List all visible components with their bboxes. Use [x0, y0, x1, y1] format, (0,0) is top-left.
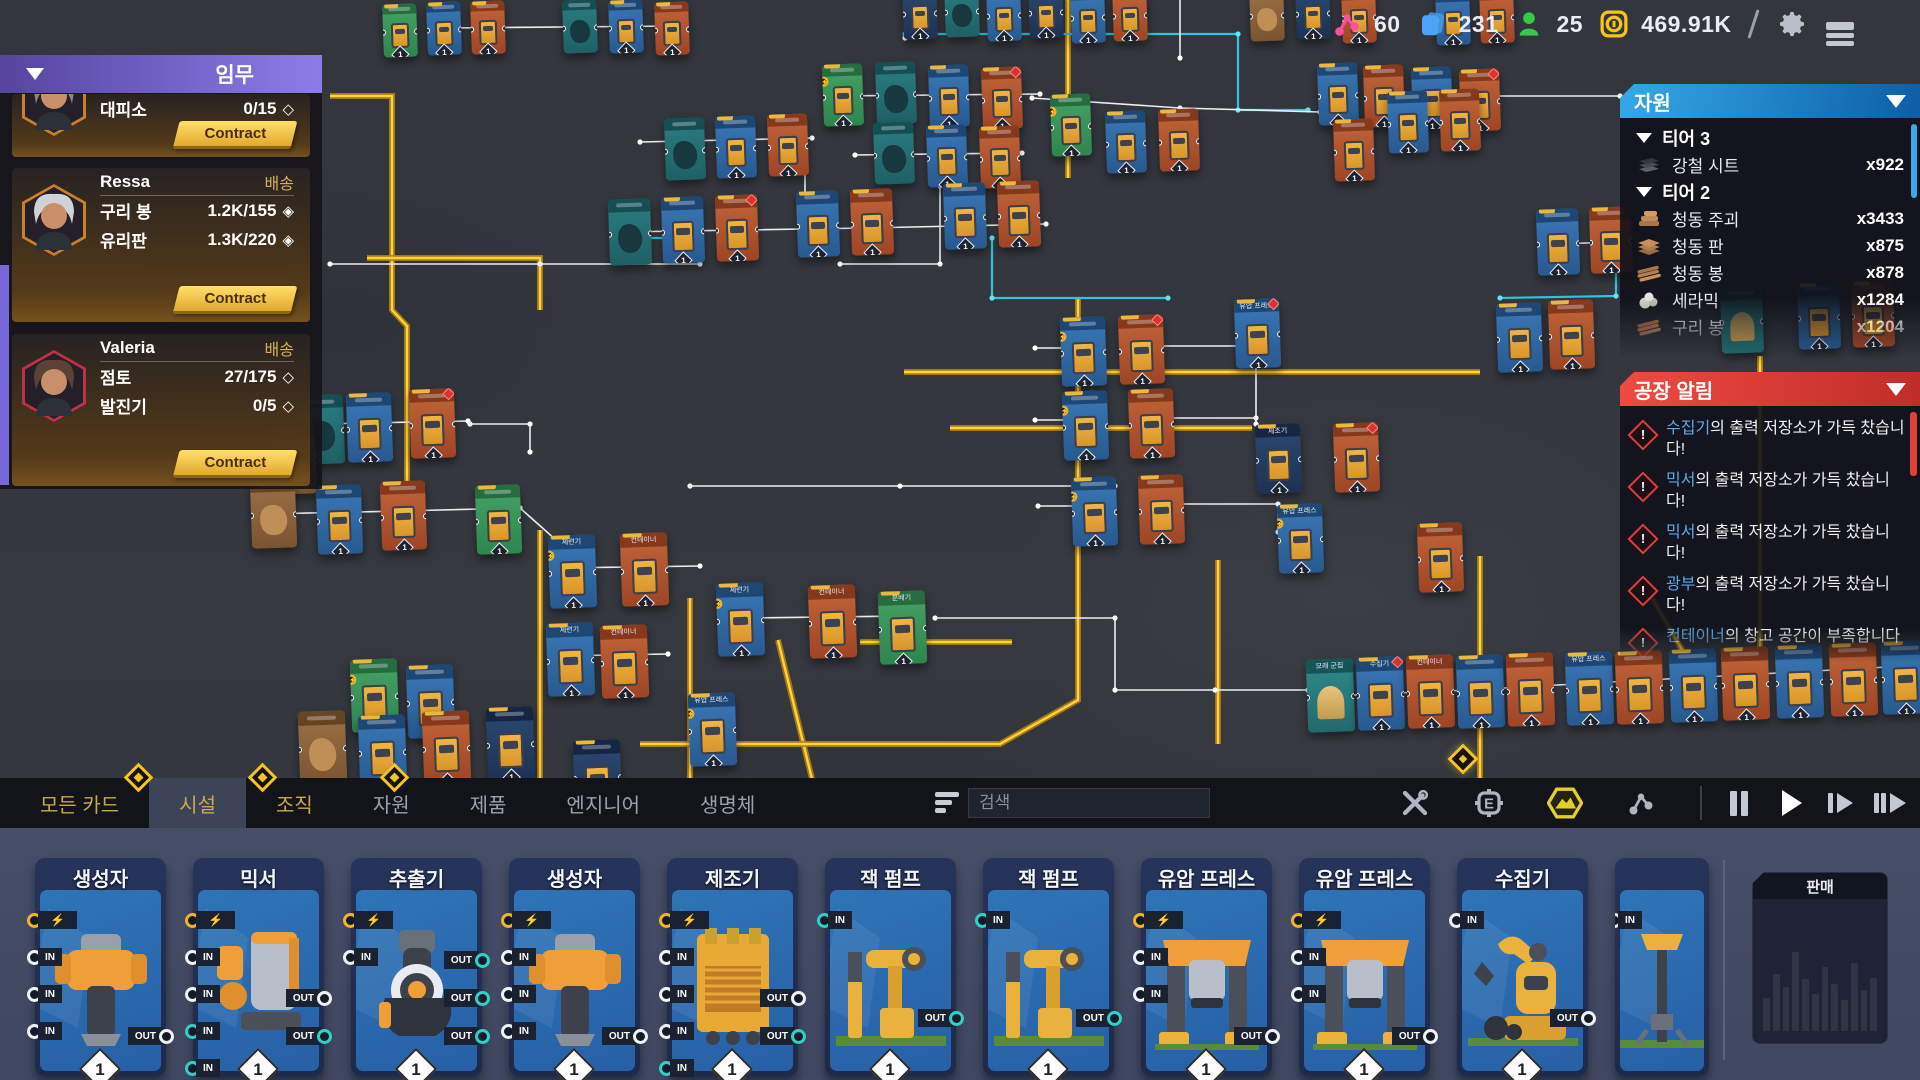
contract-button[interactable]: Contract: [173, 121, 298, 149]
machine-art: [1115, 133, 1137, 163]
settings-button[interactable]: [1775, 7, 1809, 41]
map-card[interactable]: 1: [1070, 0, 1106, 44]
alert-item[interactable]: !수집기의 출력 저장소가 가득 찼습니다!: [1620, 412, 1920, 464]
machine-art: [1893, 667, 1919, 702]
pause-button[interactable]: [1730, 790, 1748, 816]
map-card[interactable]: 1: [986, 0, 1022, 42]
map-card[interactable]: 1: [470, 0, 506, 54]
map-card-art: [664, 129, 706, 181]
copper-rod-icon: [1636, 317, 1662, 337]
resource-count: x3433: [1857, 209, 1904, 229]
map-card[interactable]: 1: [426, 1, 462, 55]
map-card[interactable]: [1249, 0, 1285, 42]
card-tab: [719, 583, 738, 588]
machine-art: [498, 733, 524, 768]
sell-panel[interactable]: 판매: [1752, 872, 1888, 1044]
map-card[interactable]: 제련기1: [546, 622, 596, 697]
power-port: ⚡: [501, 910, 551, 930]
map-card[interactable]: 컨테이너1: [1406, 654, 1456, 729]
mission-accent-strip: [0, 265, 9, 485]
collapse-triangle-icon: [1636, 133, 1652, 143]
map-card[interactable]: [298, 710, 348, 785]
machine-art: [1418, 681, 1444, 716]
item-progress: 0/5: [253, 396, 277, 415]
card-tab: [1459, 655, 1478, 660]
map-card[interactable]: 1: [1387, 90, 1429, 153]
map-card[interactable]: 1: [981, 66, 1023, 129]
contract-rows: 대피소0/15◇: [100, 94, 294, 123]
machine-art: [1681, 675, 1707, 710]
card-tab: [1319, 63, 1335, 68]
mission-panel-header[interactable]: 임무: [0, 55, 322, 93]
power-port: ⚡: [343, 910, 393, 930]
map-card[interactable]: 1: [1118, 314, 1165, 385]
card-tab: [1073, 477, 1091, 482]
map-card[interactable]: 1: [1295, 0, 1331, 40]
map-card-art: [298, 724, 347, 785]
machine-art: [1627, 677, 1653, 712]
card-hex-icon[interactable]: [1546, 785, 1584, 821]
card-tab: [981, 126, 997, 131]
fastest-speed-button[interactable]: [1874, 790, 1906, 816]
input-port: IN: [1615, 910, 1642, 930]
contract-rows: Ressa배송구리 봉1.2K/155◈유리판1.3K/220◈: [100, 168, 294, 254]
tab-5[interactable]: 엔지니어: [536, 778, 670, 828]
machine-art: [995, 7, 1014, 32]
resource-name: 청동 봉: [1672, 260, 1724, 285]
map-card-art: [562, 9, 597, 53]
stats-bar: 60 231 25 469.91K: [1330, 6, 1920, 42]
currency-icon: [1597, 7, 1631, 41]
power-port-icon: ⚡: [1062, 405, 1069, 415]
item-name: 유리판: [100, 227, 147, 252]
hand-card-유압 프레스[interactable]: 유압 프레스⚡ININOUT1: [1299, 858, 1430, 1076]
client-name: Ressa: [100, 172, 150, 192]
resource-art: [884, 85, 908, 113]
input-port: IN: [1291, 947, 1326, 967]
contract-type-label: 배송: [265, 336, 294, 360]
map-card[interactable]: 컨테이너1: [620, 532, 670, 607]
map-card[interactable]: 1: [1496, 302, 1543, 373]
hand-card-추출기[interactable]: 추출기⚡INOUTOUTOUT1: [351, 858, 482, 1076]
map-card-art: [1249, 0, 1284, 42]
network-view-icon[interactable]: [1622, 785, 1660, 821]
map-card[interactable]: ⚡1: [1071, 476, 1118, 547]
machine-art: [1079, 9, 1098, 34]
card-tab: [1335, 423, 1353, 428]
input-port: IN: [817, 910, 852, 930]
alert-item[interactable]: !광부의 출력 저장소가 가득 찼습니다!: [1620, 568, 1920, 620]
resource-name: 청동 주괴: [1672, 206, 1739, 231]
input-port: IN: [501, 984, 536, 1004]
map-card[interactable]: [944, 0, 980, 38]
input-port: IN: [501, 947, 536, 967]
machine-art: [672, 220, 695, 252]
power-port-icon: ⚡: [1060, 331, 1067, 341]
card-tab: [1359, 657, 1378, 662]
hand-card-partial[interactable]: IN: [1615, 858, 1709, 1076]
contract-client-row: Ressa배송: [100, 168, 294, 196]
progress-diamond-icon: ◇: [282, 369, 294, 386]
output-port: OUT: [1234, 1026, 1280, 1046]
map-card[interactable]: 1: [767, 113, 809, 176]
resource-name: 구리 봉: [1672, 314, 1724, 339]
map-card[interactable]: [608, 198, 652, 265]
map-card[interactable]: 1: [997, 180, 1041, 247]
item-name: 점토: [100, 364, 131, 389]
tab-6[interactable]: 생명체: [670, 778, 785, 828]
output-port: OUT: [286, 1026, 332, 1046]
alerts-scrollbar[interactable]: [1910, 412, 1917, 476]
alert-text: 컨테이너의 창고 공간이 부족합니다: [1666, 626, 1900, 647]
map-card[interactable]: 1: [1417, 522, 1464, 593]
output-port: OUT: [1076, 1008, 1122, 1028]
map-card[interactable]: 1: [928, 64, 970, 127]
map-card[interactable]: 모래 군집: [1306, 658, 1356, 733]
sell-chart-bars: [1763, 921, 1877, 1031]
card-tab: [1389, 91, 1405, 96]
map-card[interactable]: 1: [1333, 422, 1380, 493]
map-card[interactable]: 컨테이너1: [808, 584, 858, 659]
map-card[interactable]: 제련기⚡1: [548, 534, 598, 609]
map-card[interactable]: 1: [1536, 208, 1580, 275]
map-card[interactable]: ⚡1: [1050, 93, 1092, 156]
machine-art: [1600, 230, 1623, 262]
map-card[interactable]: 1: [661, 196, 705, 263]
map-card[interactable]: 제련기⚡1: [716, 582, 766, 657]
contract-card: Ressa배송구리 봉1.2K/155◈유리판1.3K/220◈Contract: [12, 168, 310, 322]
map-card-art: [944, 0, 979, 38]
card-tab: [477, 485, 495, 490]
machine-art: [612, 651, 638, 686]
map-card[interactable]: [875, 61, 917, 124]
card-tab: [1568, 652, 1587, 657]
tab-1[interactable]: 시설: [149, 778, 246, 828]
machine-art: [777, 136, 799, 166]
output-port: OUT: [760, 988, 806, 1008]
tier-header-row[interactable]: 티어 2: [1620, 178, 1920, 205]
hand-card-생성자[interactable]: 생성자⚡INININOUT1: [35, 858, 166, 1076]
resource-row: 구리 봉x1204: [1620, 313, 1920, 340]
map-card[interactable]: 유압 프레스⚡1: [1277, 503, 1324, 574]
resource-art: [673, 141, 697, 169]
machine-art: [700, 719, 726, 754]
contract-card: Valeria배송점토27/175◇발진기0/5◇Contract: [12, 334, 310, 486]
tab-4[interactable]: 제품: [440, 778, 537, 828]
machine-art: [890, 617, 916, 652]
machine-art: [435, 21, 454, 46]
map-card[interactable]: 1: [486, 706, 536, 781]
machine-art: [989, 148, 1011, 178]
map-card[interactable]: 1: [1317, 62, 1359, 125]
warning-diamond-icon: !: [1632, 476, 1654, 498]
card-tab: [382, 481, 400, 486]
machine-art: [1149, 499, 1174, 532]
hand-card-title: 생성자: [509, 863, 640, 892]
hand-card-믹서[interactable]: 믹서⚡ININININOUTOUT1: [193, 858, 324, 1076]
card-tab: [623, 533, 642, 538]
machine-art: [663, 21, 682, 46]
hand-card-title: 유압 프레스: [1299, 863, 1430, 892]
input-port: IN: [27, 1021, 62, 1041]
machine-art: [861, 212, 884, 244]
cards-count: 231: [1459, 11, 1499, 38]
currency-count: 469.91K: [1641, 11, 1731, 38]
output-port: OUT: [444, 988, 490, 1008]
toolbar-divider: [1700, 786, 1702, 820]
card-tab: [1538, 209, 1555, 214]
warning-diamond-icon: !: [1632, 424, 1654, 446]
resource-art: [309, 738, 337, 771]
card-tab: [361, 715, 380, 720]
card-tab: [472, 1, 486, 5]
hand-card-title: 믹서: [193, 863, 324, 892]
machine-art: [1304, 5, 1323, 30]
machine-art: [1168, 131, 1190, 161]
machine-art: [725, 138, 747, 168]
game-screen: 11111111111111⚡111⚡111111111111111111111…: [0, 0, 1920, 1080]
map-card[interactable]: 1: [1158, 108, 1200, 171]
tier-label: 티어 2: [1662, 179, 1710, 205]
stat-network: 60: [1330, 7, 1401, 41]
card-tab: [717, 195, 734, 200]
contract-item-row: 구리 봉1.2K/155◈: [100, 196, 294, 225]
machine-art: [728, 609, 754, 644]
contract-button[interactable]: Contract: [173, 286, 298, 314]
resources-panel-title: 자원: [1634, 87, 1671, 116]
bronze-plate-icon: [1636, 236, 1662, 256]
machine-art: [1266, 448, 1291, 481]
map-card[interactable]: 1: [1138, 474, 1185, 545]
machine-art: [936, 147, 958, 177]
card-tab: [1335, 119, 1351, 124]
map-card-art: [873, 133, 915, 185]
alert-item[interactable]: !컨테이너의 창고 공간이 부족합니다: [1620, 620, 1920, 658]
map-card[interactable]: ⚡1: [1060, 316, 1107, 387]
machine-art: [1288, 528, 1313, 561]
input-port: IN: [659, 984, 694, 1004]
map-card[interactable]: 1: [380, 480, 427, 551]
map-card[interactable]: 1: [902, 0, 938, 40]
build-tools-icon[interactable]: [1396, 785, 1434, 821]
hand-card-잭 펌프[interactable]: 잭 펌프INOUT1: [825, 858, 956, 1076]
map-card[interactable]: 컨테이너1: [600, 624, 650, 699]
resource-count: x1284: [1857, 290, 1904, 310]
map-card[interactable]: 1: [382, 3, 418, 57]
alert-list: !수집기의 출력 저장소가 가득 찼습니다!!믹서의 출력 저장소가 가득 찼습…: [1620, 406, 1920, 658]
resource-row: 세라믹x1284: [1620, 286, 1920, 313]
card-tab: [1419, 523, 1437, 528]
machine-art: [486, 509, 511, 542]
map-card[interactable]: 1: [409, 388, 456, 459]
map-card[interactable]: [873, 121, 915, 184]
card-tab: [1160, 109, 1176, 114]
machine-art: [434, 737, 460, 772]
menu-button[interactable]: [1823, 7, 1857, 41]
machine-art: [1008, 204, 1031, 236]
card-tab: [1052, 94, 1068, 99]
card-tab: [610, 0, 624, 4]
machine-art: [1071, 341, 1096, 374]
hand-card-title: 추출기: [351, 863, 482, 892]
stat-cards: 231: [1415, 7, 1499, 41]
hand-card-title: 잭 펌프: [983, 863, 1114, 892]
input-port: IN: [659, 1058, 694, 1078]
output-port: OUT: [128, 1026, 174, 1046]
map-card[interactable]: 1: [715, 115, 757, 178]
machine-art: [391, 505, 416, 538]
machine-art: [560, 561, 586, 596]
map-card[interactable]: 1: [316, 484, 363, 555]
card-tab: [1236, 299, 1254, 304]
alerts-panel-title: 공장 알림: [1634, 375, 1713, 404]
machine-art: [1139, 413, 1164, 446]
card-tab: [348, 393, 366, 398]
avatar: [22, 184, 86, 256]
network-icon: [1330, 7, 1364, 41]
map-card[interactable]: 1: [1456, 654, 1506, 729]
engineer-gear-icon[interactable]: E: [1470, 785, 1508, 821]
map-card[interactable]: 1: [608, 0, 644, 54]
avatar: [22, 350, 86, 422]
contract-item-row: 점토27/175◇: [100, 362, 294, 391]
map-card[interactable]: 1: [1548, 299, 1595, 370]
machine-art: [632, 559, 658, 594]
hand-card-title: 제조기: [667, 863, 798, 892]
map-card[interactable]: 1: [475, 484, 522, 555]
map-card[interactable]: ⚡1: [1062, 390, 1109, 461]
machine-art: [1547, 232, 1570, 264]
map-card[interactable]: ⚡1: [822, 63, 864, 126]
map-card[interactable]: 1: [943, 182, 987, 249]
map-card[interactable]: 유압 프레스1: [1234, 298, 1281, 369]
sort-filter-icon[interactable]: [935, 789, 959, 816]
map-card[interactable]: 1: [1506, 652, 1556, 727]
hand-divider: [1723, 860, 1725, 1060]
hand-card-잭 펌프[interactable]: 잭 펌프INOUT1: [983, 858, 1114, 1076]
map-card[interactable]: 1: [1439, 88, 1481, 151]
map-card[interactable]: 1: [850, 188, 894, 255]
bronze-ingot-icon: [1636, 209, 1662, 229]
map-card[interactable]: 1: [346, 392, 393, 463]
map-card[interactable]: [562, 0, 598, 54]
output-port: OUT: [918, 1008, 964, 1028]
input-port: IN: [1291, 984, 1326, 1004]
machine-art: [1787, 671, 1813, 706]
item-progress: 1.2K/155: [207, 201, 276, 220]
contract-button[interactable]: Contract: [173, 450, 298, 478]
input-port: IN: [1133, 984, 1168, 1004]
card-tab: [549, 623, 568, 628]
machine-art: [832, 86, 854, 116]
map-card[interactable]: 1: [1028, 0, 1064, 39]
contract-item-row: 발진기0/5◇: [100, 391, 294, 420]
output-port: OUT: [1550, 1008, 1596, 1028]
resource-count: x1204: [1857, 317, 1904, 337]
map-card[interactable]: 1: [1128, 388, 1175, 459]
map-card[interactable]: 1: [1112, 0, 1148, 42]
play-button[interactable]: [1782, 790, 1802, 816]
map-waypoint-diamond: [1447, 743, 1478, 774]
hud-divider: [1747, 9, 1759, 38]
map-card[interactable]: 1: [926, 124, 968, 187]
map-card[interactable]: 제조기1: [1255, 423, 1302, 494]
machine-art: [1449, 111, 1471, 141]
population-count: 25: [1556, 11, 1583, 38]
resource-art: [570, 19, 591, 43]
card-tab: [1107, 111, 1123, 116]
map-card[interactable]: [664, 117, 706, 180]
map-card[interactable]: 수집기1: [1356, 656, 1406, 731]
map-card[interactable]: 1: [979, 125, 1021, 188]
card-tab: [1409, 655, 1428, 660]
resources-panel-header[interactable]: 자원: [1620, 84, 1920, 118]
map-card[interactable]: 1: [422, 710, 472, 785]
card-tab: [824, 64, 840, 69]
machine-art: [1037, 4, 1056, 29]
tier-header-row[interactable]: 티어 3: [1620, 124, 1920, 151]
machine-art: [1327, 85, 1349, 115]
hand-card-생성자[interactable]: 생성자⚡INININOUT1: [509, 858, 640, 1076]
contract-item-row: 대피소0/15◇: [100, 94, 294, 123]
card-tab: [1279, 504, 1297, 509]
resources-scrollbar[interactable]: [1911, 124, 1917, 198]
hand-card-수집기[interactable]: 수집기INOUT1: [1457, 858, 1588, 1076]
machine-art: [558, 649, 584, 684]
fast-forward-button[interactable]: [1828, 790, 1853, 816]
machine-art: [1397, 113, 1419, 143]
card-tab: [425, 711, 444, 716]
alert-item[interactable]: !믹서의 출력 저장소가 가득 찼습니다!: [1620, 464, 1920, 516]
card-tab: [881, 591, 900, 596]
card-tab: [852, 189, 869, 194]
map-card[interactable]: 유압 프레스⚡1: [688, 692, 738, 767]
search-input[interactable]: [968, 788, 1210, 818]
map-card[interactable]: 1: [1105, 110, 1147, 173]
power-port: ⚡: [1133, 910, 1183, 930]
card-tab: [1130, 389, 1148, 394]
map-card-art: [608, 211, 652, 266]
machine-art: [938, 87, 960, 117]
machine-art: [1559, 324, 1584, 357]
hand-card-유압 프레스[interactable]: 유압 프레스⚡ININOUT1: [1141, 858, 1272, 1076]
map-card[interactable]: 1: [654, 1, 690, 55]
map-card[interactable]: 1: [715, 194, 759, 261]
map-card[interactable]: 유압 프레스1: [1565, 651, 1615, 726]
map-card[interactable]: 1: [796, 190, 840, 257]
population-icon: [1512, 7, 1546, 41]
tab-0[interactable]: 모든 카드: [10, 778, 149, 828]
hand-card-제조기[interactable]: 제조기⚡ININININOUTOUT1: [667, 858, 798, 1076]
alert-item[interactable]: !믹서의 출력 저장소가 가득 찼습니다!: [1620, 516, 1920, 568]
card-tab: [663, 197, 680, 202]
resource-name: 청동 판: [1672, 233, 1724, 258]
card-tab: [769, 114, 785, 119]
item-progress: 0/15: [243, 99, 276, 118]
machine-art: [991, 89, 1013, 119]
card-tab: [1365, 65, 1381, 70]
card-tab: [489, 707, 508, 712]
alerts-panel-header[interactable]: 공장 알림: [1620, 372, 1920, 406]
map-card[interactable]: 1: [1333, 118, 1375, 181]
factory-alerts-panel: 공장 알림 !수집기의 출력 저장소가 가득 찼습니다!!믹서의 출력 저장소가…: [1620, 372, 1920, 662]
input-port: IN: [501, 1021, 536, 1041]
map-card[interactable]: 분배기1: [878, 590, 928, 665]
card-tab: [811, 585, 830, 590]
resource-count: x878: [1866, 263, 1904, 283]
power-port-icon: ⚡: [1071, 491, 1078, 501]
machine-art: [1428, 547, 1453, 580]
